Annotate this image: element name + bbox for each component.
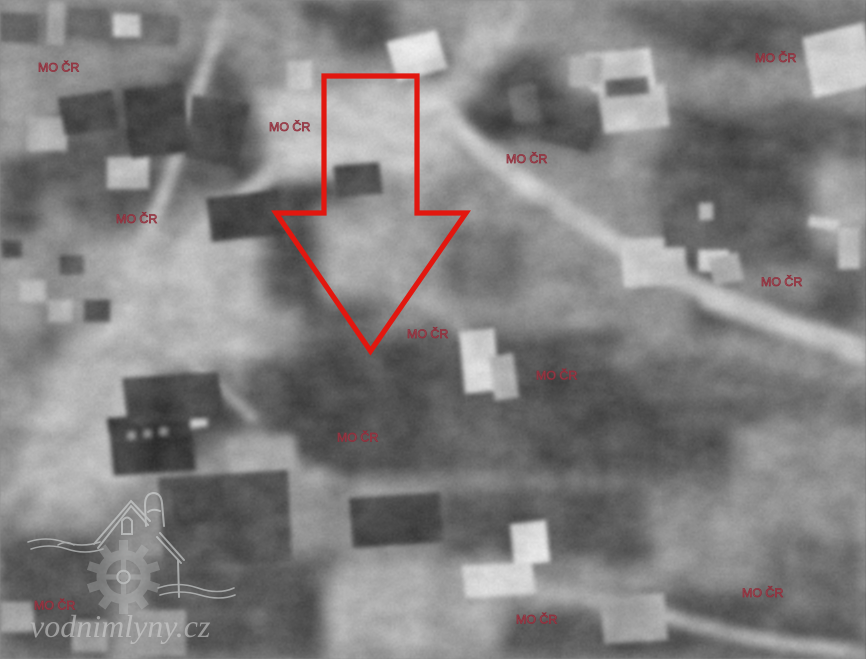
svg-text:vodnimlyny.cz: vodnimlyny.cz xyxy=(30,608,211,644)
svg-text:MO ČR: MO ČR xyxy=(407,326,448,341)
svg-text:MO ČR: MO ČR xyxy=(34,598,75,613)
svg-text:MO ČR: MO ČR xyxy=(742,585,783,600)
svg-text:MO ČR: MO ČR xyxy=(337,430,378,445)
svg-text:MO ČR: MO ČR xyxy=(116,211,157,226)
svg-text:MO ČR: MO ČR xyxy=(536,368,577,383)
svg-text:MO ČR: MO ČR xyxy=(516,612,557,627)
svg-text:MO ČR: MO ČR xyxy=(269,119,310,134)
svg-text:MO ČR: MO ČR xyxy=(755,50,796,65)
svg-text:MO ČR: MO ČR xyxy=(506,151,547,166)
svg-text:MO ČR: MO ČR xyxy=(38,60,79,75)
svg-text:MO ČR: MO ČR xyxy=(761,274,802,289)
